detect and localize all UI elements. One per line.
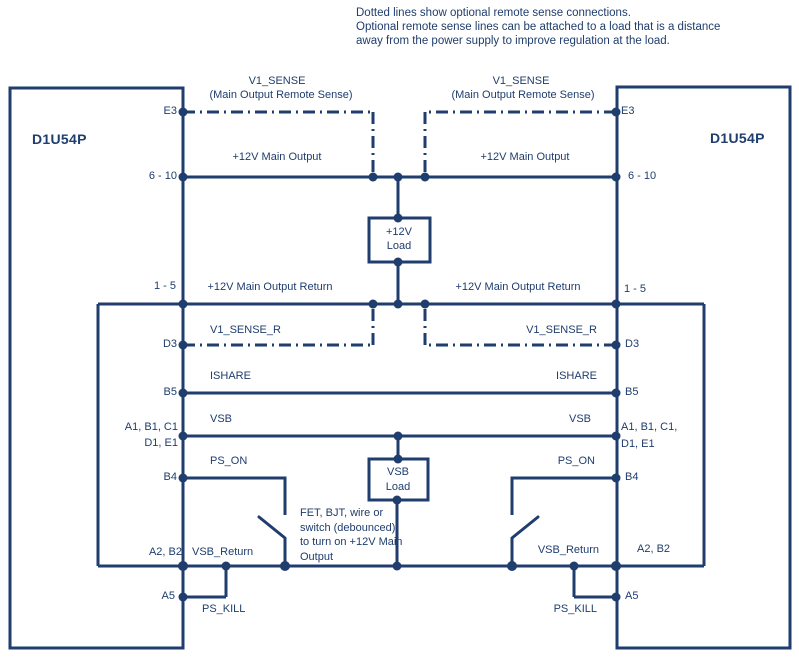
vsb-label-left: VSB [210, 413, 232, 426]
switch-note-line-3: to turn on +12V Main [300, 535, 402, 549]
pin-label-right-d3: D3 [625, 338, 639, 351]
switch-note-line-2: switch (debounced) [300, 521, 395, 535]
v1-sense-label-left: V1_SENSE [249, 75, 306, 88]
ps-on-label-left: PS_ON [210, 455, 247, 468]
pin-label-left-e3: E3 [164, 105, 177, 118]
left-psu-title: D1U54P [32, 133, 87, 146]
pin-label-right-a5: A5 [625, 590, 638, 603]
main-output-label-left: +12V Main Output [233, 151, 322, 164]
wire-ps-kill-left [183, 566, 226, 597]
pin-label-left-a5: A5 [162, 590, 175, 603]
pin-label-right-vsb-a: A1, B1, C1, [621, 421, 677, 434]
ps-kill-label-left: PS_KILL [202, 603, 245, 616]
vsb-load-label-line1: VSB [387, 466, 409, 479]
wire-ps-on-left [183, 478, 285, 515]
pin-label-right-b5: B5 [625, 386, 638, 399]
main-return-label-left: +12V Main Output Return [207, 281, 332, 294]
v1-sense-label-right: V1_SENSE [493, 75, 550, 88]
schematic-canvas: Dotted lines show optional remote sense … [0, 0, 799, 657]
annotation-line-2: Optional remote sense lines can be attac… [356, 20, 720, 34]
annotation-line-3: away from the power supply to improve re… [356, 34, 670, 48]
vsb-return-label-left: VSB_Return [192, 546, 253, 559]
pin-label-right-b4: B4 [625, 471, 638, 484]
ishare-label-right: ISHARE [556, 370, 597, 383]
main-output-label-right: +12V Main Output [481, 151, 570, 164]
switch-note-line-1: FET, BJT, wire or [300, 506, 383, 520]
switch-note-line-4: Output [300, 550, 333, 564]
vsb-label-right: VSB [569, 413, 591, 426]
pin-label-left-6-10: 6 - 10 [149, 170, 177, 183]
ps-on-label-right: PS_ON [558, 455, 595, 468]
main-return-label-right: +12V Main Output Return [455, 281, 580, 294]
pin-label-right-6-10: 6 - 10 [628, 170, 656, 183]
switch-blade-left [259, 517, 285, 538]
switch-blade-right [512, 517, 538, 538]
pin-label-left-vsb-a: A1, B1, C1 [125, 421, 178, 434]
pin-label-right-1-5: 1 - 5 [624, 283, 646, 296]
pin-label-left-b4: B4 [164, 471, 177, 484]
pin-label-left-1-5: 1 - 5 [154, 280, 176, 293]
main-load-label-line2: Load [387, 240, 411, 253]
pin-label-left-d3: D3 [163, 338, 177, 351]
right-psu-title: D1U54P [710, 132, 765, 145]
main-load-label-line1: +12V [386, 226, 412, 239]
pin-label-left-b5: B5 [164, 386, 177, 399]
v1-sense-r-label-right: V1_SENSE_R [526, 324, 597, 337]
wire-ps-kill-right [574, 566, 616, 597]
annotation-line-1: Dotted lines show optional remote sense … [356, 6, 631, 20]
pin-label-right-vsb-b: D1, E1 [621, 438, 655, 451]
pin-label-right-a2b2: A2, B2 [637, 543, 670, 556]
v1-sense-sub-label-left: (Main Output Remote Sense) [209, 89, 352, 102]
vsb-load-label-line2: Load [386, 481, 410, 494]
wiring-svg [0, 0, 799, 657]
ishare-label-left: ISHARE [210, 370, 251, 383]
vsb-return-label-right: VSB_Return [538, 544, 599, 557]
pin-label-left-a2b2: A2, B2 [149, 546, 182, 559]
ps-kill-label-right: PS_KILL [554, 603, 597, 616]
v1-sense-sub-label-right: (Main Output Remote Sense) [451, 89, 594, 102]
wire-ps-on-right [512, 478, 616, 515]
pin-label-left-vsb-b: D1, E1 [144, 437, 178, 450]
v1-sense-r-label-left: V1_SENSE_R [210, 324, 281, 337]
pin-label-right-e3: E3 [621, 105, 634, 118]
